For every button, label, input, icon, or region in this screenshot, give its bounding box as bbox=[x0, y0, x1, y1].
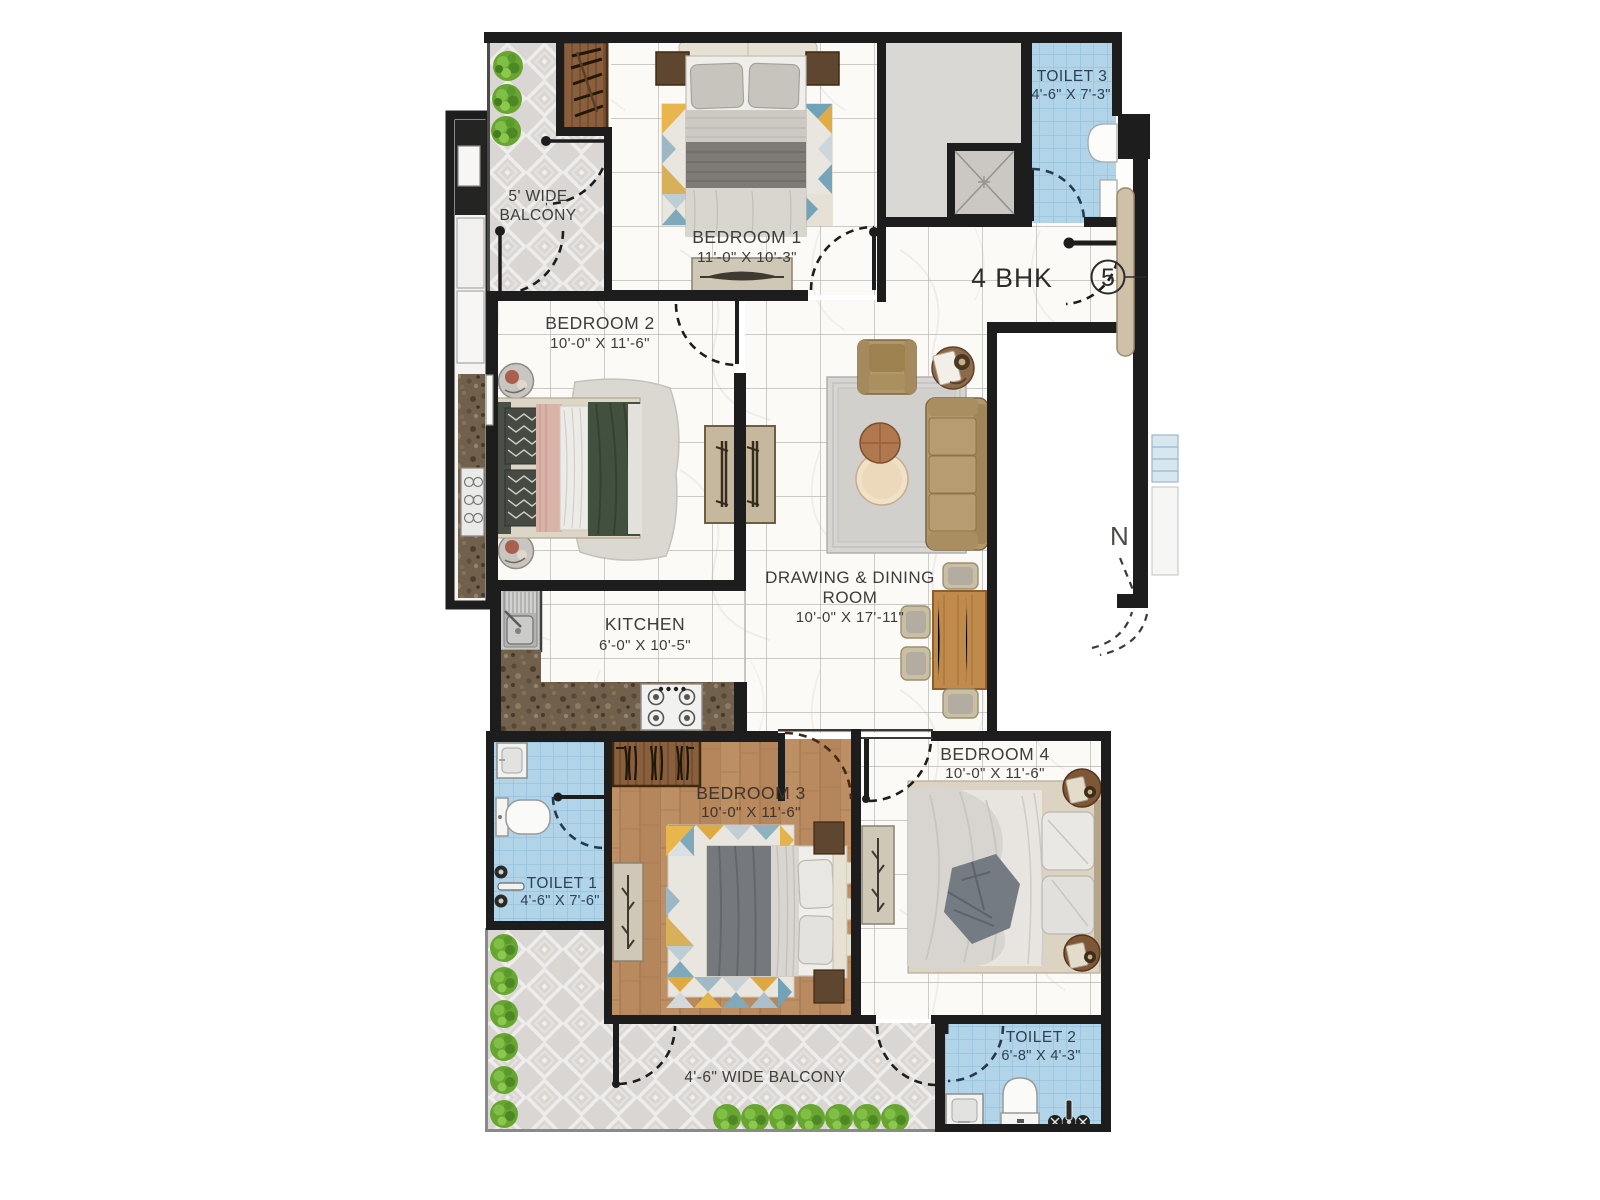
svg-text:5: 5 bbox=[1101, 264, 1115, 292]
svg-text:TOILET 2: TOILET 2 bbox=[1006, 1029, 1077, 1046]
svg-text:BEDROOM 4: BEDROOM 4 bbox=[940, 744, 1050, 764]
svg-text:10'-0" X 11'-6": 10'-0" X 11'-6" bbox=[550, 335, 650, 352]
svg-text:BEDROOM 3: BEDROOM 3 bbox=[696, 783, 806, 803]
svg-text:6'-8" X 4'-3": 6'-8" X 4'-3" bbox=[1001, 1048, 1080, 1064]
svg-text:ROOM: ROOM bbox=[823, 588, 878, 607]
svg-text:4'-6" X 7'-6": 4'-6" X 7'-6" bbox=[520, 893, 599, 909]
svg-text:4'-6" X 7'-3": 4'-6" X 7'-3" bbox=[1031, 87, 1110, 103]
svg-text:5' WIDE: 5' WIDE bbox=[508, 188, 567, 205]
svg-text:KITCHEN: KITCHEN bbox=[605, 614, 685, 634]
svg-text:DRAWING & DINING: DRAWING & DINING bbox=[765, 568, 935, 587]
svg-text:4'-6" WIDE BALCONY: 4'-6" WIDE BALCONY bbox=[684, 1069, 845, 1086]
svg-text:4 BHK: 4 BHK bbox=[971, 263, 1053, 293]
svg-text:10'-0" X 11'-6": 10'-0" X 11'-6" bbox=[945, 765, 1045, 782]
svg-text:10'-0" X 11'-6": 10'-0" X 11'-6" bbox=[701, 804, 801, 821]
svg-text:TOILET 1: TOILET 1 bbox=[527, 875, 598, 892]
svg-text:11'-0" X 10'-3": 11'-0" X 10'-3" bbox=[697, 249, 797, 266]
svg-text:BALCONY: BALCONY bbox=[500, 207, 577, 224]
svg-text:TOILET 3: TOILET 3 bbox=[1037, 68, 1108, 85]
svg-text:10'-0" X 17'-11": 10'-0" X 17'-11" bbox=[796, 609, 904, 626]
svg-text:BEDROOM 2: BEDROOM 2 bbox=[545, 313, 655, 333]
svg-text:6'-0" X 10'-5": 6'-0" X 10'-5" bbox=[599, 637, 691, 654]
svg-text:N: N bbox=[1110, 521, 1129, 551]
svg-text:BEDROOM 1: BEDROOM 1 bbox=[692, 227, 802, 247]
